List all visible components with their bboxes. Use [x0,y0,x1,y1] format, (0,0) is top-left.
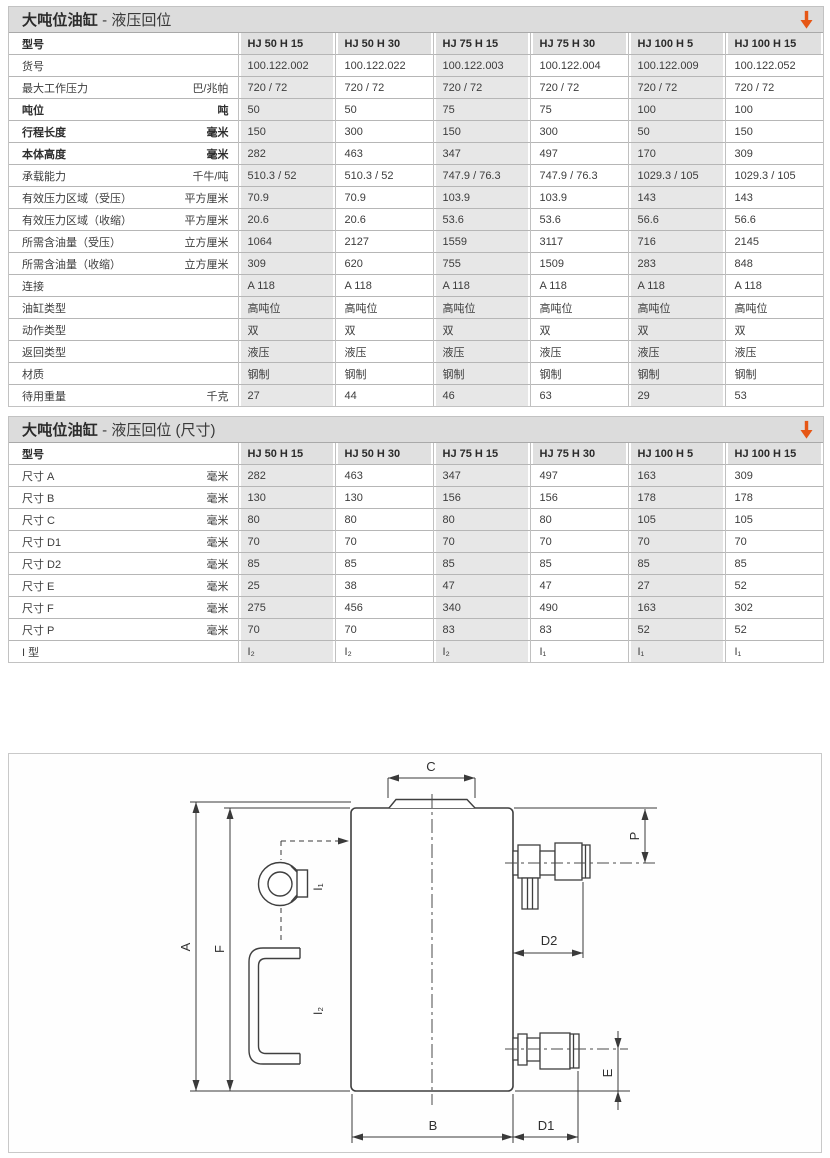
value-cell: 178 [725,487,823,509]
value-cell: A 118 [725,275,823,297]
value-cell: 720 / 72 [530,77,628,99]
row-label-wrap: 所需含油量（收缩）立方厘米 [9,253,238,274]
value-cell: 27 [238,385,335,407]
row-label-cell: 有效压力区域（收缩）平方厘米 [9,209,238,231]
value-cell: 52 [628,619,725,641]
value-cell: 38 [335,575,433,597]
cell-value: 283 [631,253,723,274]
spec-table-grid: 型号HJ 50 H 15HJ 50 H 30HJ 75 H 15HJ 75 H … [9,443,823,662]
value-cell: 170 [628,143,725,165]
table-row: 尺寸 A毫米282463347497163309 [9,465,823,487]
cell-value: 双 [631,319,723,340]
cell-value: A 118 [241,275,333,296]
value-cell: 80 [238,509,335,531]
value-cell: 70 [433,531,530,553]
value-cell: 47 [530,575,628,597]
cell-value: 490 [533,597,626,618]
value-cell: 283 [628,253,725,275]
value-cell: 497 [530,143,628,165]
row-unit: 吨 [218,102,229,118]
row-label-cell: 最大工作压力巴/兆帕 [9,77,238,99]
value-cell: 720 / 72 [433,77,530,99]
column-header-cell: HJ 75 H 15 [433,33,530,55]
value-cell: 105 [628,509,725,531]
value-cell: 100.122.022 [335,55,433,77]
dim-D2 [513,950,583,957]
cell-value: 钢制 [631,363,723,384]
cell-value: 双 [728,319,822,340]
cell-value: 80 [338,509,431,530]
value-cell: 20.6 [335,209,433,231]
technical-drawing-panel: A F C P D2 E B [8,753,822,1153]
value-cell: 83 [433,619,530,641]
value-cell: 50 [238,99,335,121]
table-row: 尺寸 F毫米275456340490163302 [9,597,823,619]
row-label-cell: 动作类型 [9,319,238,341]
row-label-wrap: 货号 [9,55,238,76]
cell-value: 高吨位 [241,297,333,318]
row-label-wrap: 油缸类型 [9,297,238,318]
cell-value: 双 [338,319,431,340]
download-arrow-icon[interactable] [798,9,815,30]
cell-value: 52 [631,619,723,640]
cell-value: 170 [631,143,723,164]
value-cell: I₁ [530,641,628,663]
value-cell: 720 / 72 [725,77,823,99]
cell-value: 150 [728,121,822,142]
cell-value: 80 [436,509,528,530]
cell-value: 300 [338,121,431,142]
cell-value: 100.122.009 [631,55,723,76]
value-cell: 143 [725,187,823,209]
value-cell: 282 [238,143,335,165]
row-label-wrap: 材质 [9,363,238,384]
dim-label-D1: D1 [538,1118,555,1133]
cell-value: 25 [241,575,333,596]
cell-value: 53.6 [533,209,626,230]
value-cell: 300 [530,121,628,143]
value-cell: 1064 [238,231,335,253]
row-label: 尺寸 D1 [22,534,61,550]
row-label: 有效压力区域（收缩） [22,212,132,228]
catalog-page: { "accent_orange": "#e65615", "table1": … [0,0,830,1158]
value-cell: 716 [628,231,725,253]
value-cell: 720 / 72 [238,77,335,99]
column-header-cell: HJ 50 H 15 [238,443,335,465]
cell-value: 63 [533,385,626,406]
value-cell: 720 / 72 [335,77,433,99]
cell-value: 70 [338,619,431,640]
value-cell: A 118 [628,275,725,297]
cell-value: 钢制 [338,363,431,384]
value-cell: 75 [433,99,530,121]
cell-value: 47 [436,575,528,596]
row-label-cell: 型号 [9,443,238,465]
table-header-row: 型号HJ 50 H 15HJ 50 H 30HJ 75 H 15HJ 75 H … [9,33,823,55]
value-cell: 100.122.009 [628,55,725,77]
value-cell: 150 [238,121,335,143]
table-title: 大吨位油缸 [22,9,98,30]
cell-value: 29 [631,385,723,406]
row-label: 吨位 [22,102,44,118]
cell-value: 50 [241,99,333,120]
table-row: 尺寸 E毫米253847472752 [9,575,823,597]
row-label-cell: I 型 [9,641,238,663]
row-unit: 毫米 [207,468,229,484]
cell-value: 620 [338,253,431,274]
row-unit: 毫米 [207,578,229,594]
upper-port-fitting [513,843,590,909]
dim-label-A: A [178,942,193,951]
row-label-cell: 所需含油量（受压）立方厘米 [9,231,238,253]
eyebolt-ring-inner [268,872,292,896]
value-cell: 53 [725,385,823,407]
row-label: 行程长度 [22,124,66,140]
row-label: 尺寸 A [22,468,54,484]
row-label-wrap: 承载能力千牛/吨 [9,165,238,186]
value-cell: 463 [335,465,433,487]
cell-value: 130 [338,487,431,508]
row-label: 型号 [22,36,44,52]
value-cell: 液压 [725,341,823,363]
value-cell: 1029.3 / 105 [628,165,725,187]
value-cell: 747.9 / 76.3 [530,165,628,187]
row-label-cell: 型号 [9,33,238,55]
row-label: 尺寸 C [22,512,55,528]
value-cell: I₁ [628,641,725,663]
row-label-wrap: 待用重量千克 [9,385,238,406]
column-header: HJ 50 H 15 [241,443,333,464]
cell-value: 143 [728,187,822,208]
row-label-wrap: I 型 [9,641,238,662]
value-cell: 52 [725,575,823,597]
cell-value: 83 [436,619,528,640]
row-unit: 平方厘米 [185,212,229,228]
cell-value: 46 [436,385,528,406]
eyebolt-accessory [259,863,308,906]
cell-value: 70 [533,531,626,552]
cell-value: A 118 [338,275,431,296]
row-label-wrap: 连接 [9,275,238,296]
column-header: HJ 50 H 30 [338,443,431,464]
value-cell: 347 [433,465,530,487]
value-cell: 178 [628,487,725,509]
row-label: 尺寸 D2 [22,556,61,572]
cell-value: 高吨位 [631,297,723,318]
value-cell: 液压 [433,341,530,363]
value-cell: 1509 [530,253,628,275]
cell-value: 105 [728,509,822,530]
value-cell: 双 [335,319,433,341]
value-cell: 53.6 [530,209,628,231]
value-cell: 钢制 [433,363,530,385]
value-cell: 29 [628,385,725,407]
value-cell: 150 [433,121,530,143]
table-row: 吨位吨50507575100100 [9,99,823,121]
row-label-wrap: 尺寸 F毫米 [9,597,238,618]
value-cell: 510.3 / 52 [238,165,335,187]
row-label-cell: 所需含油量（收缩）立方厘米 [9,253,238,275]
cell-value: 309 [728,465,822,486]
row-label-wrap: 有效压力区域（受压）平方厘米 [9,187,238,208]
table-row: 待用重量千克274446632953 [9,385,823,407]
value-cell: 高吨位 [433,297,530,319]
value-cell: A 118 [530,275,628,297]
value-cell: 100.122.004 [530,55,628,77]
cell-value: 85 [436,553,528,574]
cell-value: 1509 [533,253,626,274]
cell-value: 液压 [728,341,822,362]
value-cell: 液压 [628,341,725,363]
dim-A [193,802,200,1091]
value-cell: 150 [725,121,823,143]
column-header: HJ 75 H 30 [533,33,626,54]
cell-value: 双 [241,319,333,340]
row-label: 型号 [22,446,44,462]
cylinder-dimension-drawing: A F C P D2 E B [9,754,821,1152]
lower-port-fitting [513,1033,579,1069]
row-unit: 毫米 [207,124,229,140]
cell-value: 103.9 [436,187,528,208]
value-cell: 747.9 / 76.3 [433,165,530,187]
value-cell: 130 [238,487,335,509]
column-header: HJ 50 H 15 [241,33,333,54]
value-cell: 50 [335,99,433,121]
row-label-cell: 尺寸 C毫米 [9,509,238,531]
value-cell: 钢制 [238,363,335,385]
row-label: 所需含油量（收缩） [22,256,121,272]
cell-value: A 118 [728,275,822,296]
table-row: 最大工作压力巴/兆帕720 / 72720 / 72720 / 72720 / … [9,77,823,99]
column-header-cell: HJ 75 H 30 [530,443,628,465]
table-row: 所需含油量（收缩）立方厘米3096207551509283848 [9,253,823,275]
cell-value: 47 [533,575,626,596]
table-row: 材质钢制钢制钢制钢制钢制钢制 [9,363,823,385]
row-label-wrap: 尺寸 P毫米 [9,619,238,640]
value-cell: 双 [725,319,823,341]
dim-D1 [513,1134,578,1141]
cell-value: 282 [241,143,333,164]
value-cell: 3117 [530,231,628,253]
value-cell: 27 [628,575,725,597]
column-header: HJ 100 H 15 [728,443,822,464]
row-unit: 毫米 [207,622,229,638]
value-cell: 2145 [725,231,823,253]
value-cell: 20.6 [238,209,335,231]
value-cell: 163 [628,597,725,619]
cell-value: 497 [533,143,626,164]
value-cell: 53.6 [433,209,530,231]
cell-value: I₂ [436,641,528,662]
cell-value: 钢制 [241,363,333,384]
value-cell: 液压 [335,341,433,363]
row-label-cell: 尺寸 E毫米 [9,575,238,597]
table-subtitle: - 液压回位 (尺寸) [98,419,216,440]
cell-value: 53 [728,385,822,406]
cell-value: 75 [533,99,626,120]
column-header-cell: HJ 75 H 15 [433,443,530,465]
row-unit: 平方厘米 [185,190,229,206]
value-cell: 1029.3 / 105 [725,165,823,187]
spec-table-grid: 型号HJ 50 H 15HJ 50 H 30HJ 75 H 15HJ 75 H … [9,33,823,406]
value-cell: 高吨位 [238,297,335,319]
value-cell: 52 [725,619,823,641]
row-label-cell: 货号 [9,55,238,77]
value-cell: 46 [433,385,530,407]
table-row: 承载能力千牛/吨510.3 / 52510.3 / 52747.9 / 76.3… [9,165,823,187]
cell-value: 50 [631,121,723,142]
cell-value: 液压 [533,341,626,362]
value-cell: 液压 [530,341,628,363]
cell-value: 156 [533,487,626,508]
cell-value: 178 [631,487,723,508]
table-row: 尺寸 D2毫米858585858585 [9,553,823,575]
row-unit: 毫米 [207,556,229,572]
value-cell: 85 [335,553,433,575]
row-label-cell: 尺寸 D1毫米 [9,531,238,553]
dim-label-C: C [426,759,435,774]
row-label: 尺寸 P [22,622,54,638]
table-title: 大吨位油缸 [22,419,98,440]
column-header-cell: HJ 75 H 30 [530,33,628,55]
row-label-cell: 尺寸 F毫米 [9,597,238,619]
value-cell: 25 [238,575,335,597]
cell-value: 747.9 / 76.3 [533,165,626,186]
value-cell: 70.9 [335,187,433,209]
value-cell: 80 [433,509,530,531]
download-arrow-icon[interactable] [798,419,815,440]
cell-value: 178 [728,487,822,508]
cell-value: 27 [631,575,723,596]
row-label-wrap: 行程长度毫米 [9,121,238,142]
cell-value: 720 / 72 [533,77,626,98]
value-cell: 85 [530,553,628,575]
cell-value: 38 [338,575,431,596]
value-cell: 755 [433,253,530,275]
row-label: 油缸类型 [22,300,66,316]
row-label-wrap: 最大工作压力巴/兆帕 [9,77,238,98]
cell-value: 高吨位 [436,297,528,318]
table-row: 尺寸 C毫米80808080105105 [9,509,823,531]
value-cell: 456 [335,597,433,619]
row-label: 本体高度 [22,146,66,162]
cell-value: 高吨位 [533,297,626,318]
value-cell: 105 [725,509,823,531]
cell-value: 103.9 [533,187,626,208]
column-header: HJ 75 H 30 [533,443,626,464]
value-cell: 56.6 [725,209,823,231]
row-label: 有效压力区域（受压） [22,190,132,206]
cell-value: I₁ [631,641,723,662]
value-cell: 1559 [433,231,530,253]
cell-value: 347 [436,143,528,164]
row-label: 材质 [22,366,44,382]
value-cell: 50 [628,121,725,143]
cell-value: 755 [436,253,528,274]
row-label-wrap: 型号 [9,443,238,464]
dim-label-P: P [627,832,642,841]
cell-value: 1029.3 / 105 [631,165,723,186]
value-cell: 130 [335,487,433,509]
value-cell: A 118 [335,275,433,297]
spec-table-performance: 大吨位油缸 - 液压回位 型号HJ 50 H 15HJ 50 H 30HJ 75… [8,6,824,407]
cell-value: 1064 [241,231,333,252]
value-cell: 56.6 [628,209,725,231]
row-unit: 立方厘米 [185,234,229,250]
cell-value: I₁ [728,641,822,662]
value-cell: 85 [628,553,725,575]
column-header: HJ 100 H 5 [631,443,723,464]
accessory-label-I2: I₂ [311,1007,325,1015]
cell-value: 3117 [533,231,626,252]
cell-value: 1559 [436,231,528,252]
value-cell: 高吨位 [335,297,433,319]
value-cell: 70 [335,619,433,641]
value-cell: 钢制 [530,363,628,385]
row-label-cell: 承载能力千牛/吨 [9,165,238,187]
cell-value: 456 [338,597,431,618]
value-cell: 2127 [335,231,433,253]
row-label-cell: 有效压力区域（受压）平方厘米 [9,187,238,209]
cell-value: 340 [436,597,528,618]
row-label-wrap: 尺寸 D1毫米 [9,531,238,552]
cell-value: 钢制 [533,363,626,384]
column-header-cell: HJ 50 H 30 [335,33,433,55]
cell-value: 75 [436,99,528,120]
value-cell: 100.122.003 [433,55,530,77]
cell-value: 50 [338,99,431,120]
value-cell: 156 [530,487,628,509]
value-cell: 100 [725,99,823,121]
column-header-cell: HJ 100 H 5 [628,33,725,55]
value-cell: 497 [530,465,628,487]
table-title-bar: 大吨位油缸 - 液压回位 [9,7,823,33]
accessory-label-I1: I₁ [311,883,325,890]
row-label-wrap: 有效压力区域（收缩）平方厘米 [9,209,238,230]
table-row: 本体高度毫米282463347497170309 [9,143,823,165]
row-unit: 毫米 [207,600,229,616]
row-label-wrap: 尺寸 D2毫米 [9,553,238,574]
cell-value: 720 / 72 [436,77,528,98]
cell-value: 液压 [631,341,723,362]
value-cell: 80 [335,509,433,531]
value-cell: 钢制 [335,363,433,385]
value-cell: 302 [725,597,823,619]
row-label-cell: 连接 [9,275,238,297]
row-label: 尺寸 E [22,578,54,594]
value-cell: 钢制 [628,363,725,385]
cell-value: 高吨位 [338,297,431,318]
value-cell: 309 [238,253,335,275]
value-cell: 103.9 [433,187,530,209]
upper-port-branch [522,878,538,909]
table-row: 尺寸 D1毫米707070707070 [9,531,823,553]
dim-E [615,1031,622,1110]
cell-value: 85 [631,553,723,574]
column-header: HJ 75 H 15 [436,33,528,54]
value-cell: 44 [335,385,433,407]
row-label-wrap: 返回类型 [9,341,238,362]
value-cell: A 118 [433,275,530,297]
value-cell: 143 [628,187,725,209]
cell-value: 2145 [728,231,822,252]
cell-value: 20.6 [241,209,333,230]
cell-value: 85 [728,553,822,574]
cell-value: 100.122.022 [338,55,431,76]
value-cell: 80 [530,509,628,531]
row-unit: 巴/兆帕 [192,80,228,96]
dim-F [227,808,234,1091]
